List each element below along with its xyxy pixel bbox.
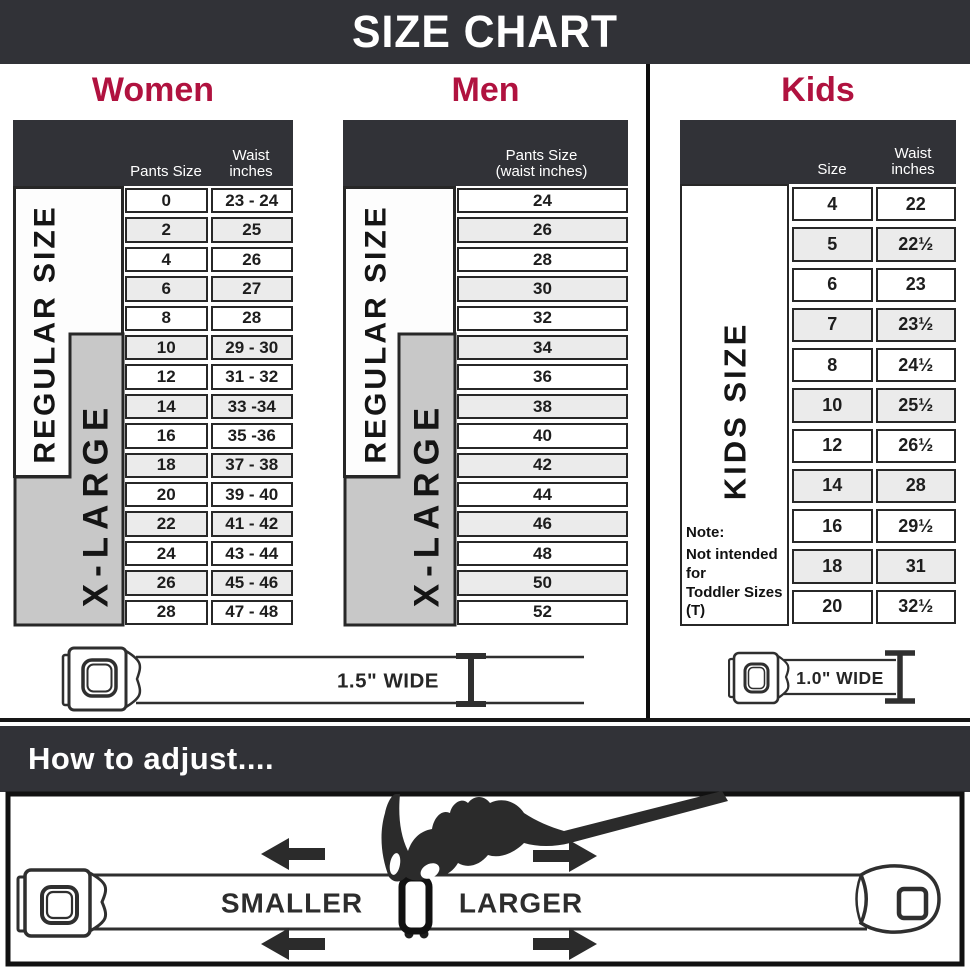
pants-size-cell: 44	[457, 482, 628, 507]
pants-size-cell: 32	[457, 306, 628, 331]
pants-size-cell: 38	[457, 394, 628, 419]
pants-size-cell: 2	[125, 217, 208, 242]
kids-size-side-label: KIDS SIZE	[718, 322, 753, 501]
pants-size-cell: 42	[457, 453, 628, 478]
table-row: 34	[457, 333, 628, 362]
adjustment-illustration: SMALLER LARGER	[5, 791, 965, 967]
how-to-adjust-band: How to adjust....	[0, 726, 970, 792]
size-cell: 14	[792, 469, 873, 503]
kids-table-header: Size Waist inches	[680, 120, 956, 184]
size-chart-page: SIZE CHART Women Men Kids Pants Size Wai…	[0, 0, 970, 971]
size-cell: 18	[792, 549, 873, 583]
kids-size-group-label-box: KIDS SIZE Note: Not intended for Toddler…	[680, 184, 789, 626]
table-row: 30	[457, 274, 628, 303]
kids-belt-illustration: 1.0" WIDE	[728, 645, 933, 717]
table-row: 16 29½	[792, 506, 956, 546]
table-row: 14 33 -34	[125, 392, 293, 421]
waist-cell: 29½	[876, 509, 957, 543]
men-table-header: Pants Size (waist inches)	[343, 120, 628, 186]
table-row: 42	[457, 451, 628, 480]
column-header-waist-inches: Waist inches	[209, 148, 293, 180]
table-row: 2 25	[125, 215, 293, 244]
table-row: 8 24½	[792, 345, 956, 385]
waist-cell: 28	[211, 306, 294, 331]
table-row: 26 45 - 46	[125, 568, 293, 597]
table-row: 38	[457, 392, 628, 421]
table-row: 44	[457, 480, 628, 509]
table-row: 16 35 -36	[125, 421, 293, 450]
women-size-table: Pants Size Waist inches REGULAR SIZE X-L…	[13, 120, 293, 627]
table-row: 14 28	[792, 466, 956, 506]
waist-cell: 31	[876, 549, 957, 583]
table-row: 10 25½	[792, 385, 956, 425]
pants-size-cell: 30	[457, 276, 628, 301]
waist-cell: 22½	[876, 227, 957, 261]
waist-cell: 32½	[876, 590, 957, 624]
pants-size-cell: 22	[125, 511, 208, 536]
section-title-kids: Kids	[680, 66, 956, 114]
pants-size-cell: 6	[125, 276, 208, 301]
table-row: 40	[457, 421, 628, 450]
size-cell: 7	[792, 308, 873, 342]
smaller-label: SMALLER	[221, 888, 363, 919]
table-row: 6 23	[792, 265, 956, 305]
table-row: 7 23½	[792, 305, 956, 345]
seatbelt-buckle-icon	[63, 648, 140, 710]
adult-belt-illustration: 1.5" WIDE	[58, 645, 588, 717]
pants-size-cell: 4	[125, 247, 208, 272]
table-row: 4 22	[792, 184, 956, 224]
kids-size-table: Size Waist inches KIDS SIZE Note: Not in…	[680, 120, 956, 627]
size-cell: 12	[792, 429, 873, 463]
waist-cell: 23 - 24	[211, 188, 294, 213]
table-row: 46	[457, 509, 628, 538]
table-row: 5 22½	[792, 224, 956, 264]
table-row: 6 27	[125, 274, 293, 303]
women-table-rows: 0 23 - 24 2 25 4 26 6 27 8 28	[125, 186, 293, 627]
width-measure-mark	[456, 656, 486, 704]
men-size-table: Pants Size (waist inches) REGULAR SIZE X…	[343, 120, 628, 627]
larger-label: LARGER	[459, 888, 583, 919]
men-kids-divider	[646, 64, 650, 718]
men-regular-size-label: REGULAR SIZE	[360, 204, 393, 463]
belt-tip	[857, 866, 940, 932]
waist-cell: 31 - 32	[211, 364, 294, 389]
seatbelt-buckle-icon	[729, 653, 788, 703]
waist-cell: 23½	[876, 308, 957, 342]
adult-belt-width-label: 1.5" WIDE	[337, 670, 439, 693]
women-size-group-labels: REGULAR SIZE X-LARGE	[13, 186, 125, 627]
kids-belt-width-label: 1.0" WIDE	[796, 668, 884, 688]
column-header-waist-inches: Waist inches	[872, 146, 954, 178]
seatbelt-buckle-icon	[18, 870, 106, 936]
waist-cell: 41 - 42	[211, 511, 294, 536]
table-row: 18 37 - 38	[125, 451, 293, 480]
waist-cell: 25	[211, 217, 294, 242]
table-row: 50	[457, 568, 628, 597]
page-title: SIZE CHART	[352, 6, 618, 58]
table-row: 32	[457, 304, 628, 333]
pants-size-cell: 20	[125, 482, 208, 507]
waist-cell: 45 - 46	[211, 570, 294, 595]
size-chart-area: Women Men Kids Pants Size Waist inches R…	[0, 64, 970, 718]
table-row: 48	[457, 539, 628, 568]
pants-size-cell: 0	[125, 188, 208, 213]
pants-size-cell: 24	[457, 188, 628, 213]
kids-table-rows: 4 22 5 22½ 6 23 7 23½ 8 24½	[792, 184, 956, 627]
size-cell: 4	[792, 187, 873, 221]
men-xlarge-label: X-LARGE	[408, 401, 447, 608]
men-size-group-labels: REGULAR SIZE X-LARGE	[343, 186, 457, 627]
table-row: 28	[457, 245, 628, 274]
table-row: 0 23 - 24	[125, 186, 293, 215]
pants-size-cell: 28	[457, 247, 628, 272]
size-cell: 5	[792, 227, 873, 261]
pants-size-cell: 52	[457, 600, 628, 625]
how-to-adjust-heading: How to adjust....	[28, 741, 274, 777]
pants-size-cell: 14	[125, 394, 208, 419]
women-regular-size-label: REGULAR SIZE	[29, 204, 62, 463]
pants-size-cell: 18	[125, 453, 208, 478]
pants-size-cell: 12	[125, 364, 208, 389]
size-cell: 10	[792, 388, 873, 422]
pants-size-cell: 8	[125, 306, 208, 331]
waist-cell: 22	[876, 187, 957, 221]
pants-size-cell: 26	[125, 570, 208, 595]
section-divider-line	[0, 718, 970, 722]
pants-size-cell: 28	[125, 600, 208, 625]
pants-size-cell: 46	[457, 511, 628, 536]
waist-cell: 23	[876, 268, 957, 302]
section-title-men: Men	[343, 66, 628, 114]
women-xlarge-label: X-LARGE	[77, 401, 116, 608]
table-row: 18 31	[792, 546, 956, 586]
pants-size-cell: 26	[457, 217, 628, 242]
table-row: 28 47 - 48	[125, 598, 293, 627]
table-row: 10 29 - 30	[125, 333, 293, 362]
men-table-rows: 24 26 28 30 32 34 36 38	[457, 186, 628, 627]
women-table-header: Pants Size Waist inches	[13, 120, 293, 186]
size-cell: 20	[792, 590, 873, 624]
table-row: 22 41 - 42	[125, 509, 293, 538]
waist-cell: 37 - 38	[211, 453, 294, 478]
column-header-pants-size-waist: Pants Size (waist inches)	[455, 148, 628, 180]
table-row: 8 28	[125, 304, 293, 333]
size-chart-banner: SIZE CHART	[0, 0, 970, 64]
waist-cell: 43 - 44	[211, 541, 294, 566]
table-row: 24	[457, 186, 628, 215]
table-row: 26	[457, 215, 628, 244]
waist-cell: 26	[211, 247, 294, 272]
pants-size-cell: 40	[457, 423, 628, 448]
column-header-pants-size: Pants Size	[123, 164, 209, 180]
waist-cell: 26½	[876, 429, 957, 463]
pants-size-cell: 48	[457, 541, 628, 566]
table-row: 24 43 - 44	[125, 539, 293, 568]
kids-note: Note: Not intended for Toddler Sizes (T)	[686, 524, 787, 621]
pants-size-cell: 10	[125, 335, 208, 360]
table-row: 4 26	[125, 245, 293, 274]
waist-cell: 28	[876, 469, 957, 503]
pants-size-cell: 50	[457, 570, 628, 595]
waist-cell: 25½	[876, 388, 957, 422]
table-row: 20 32½	[792, 587, 956, 627]
column-header-size: Size	[792, 162, 872, 178]
table-row: 20 39 - 40	[125, 480, 293, 509]
table-row: 12 31 - 32	[125, 362, 293, 391]
waist-cell: 24½	[876, 348, 957, 382]
pants-size-cell: 36	[457, 364, 628, 389]
size-cell: 6	[792, 268, 873, 302]
waist-cell: 39 - 40	[211, 482, 294, 507]
pants-size-cell: 24	[125, 541, 208, 566]
waist-cell: 35 -36	[211, 423, 294, 448]
pants-size-cell: 34	[457, 335, 628, 360]
waist-cell: 27	[211, 276, 294, 301]
adjuster-slider	[402, 871, 429, 939]
waist-cell: 33 -34	[211, 394, 294, 419]
waist-cell: 47 - 48	[211, 600, 294, 625]
table-row: 12 26½	[792, 426, 956, 466]
table-row: 36	[457, 362, 628, 391]
table-row: 52	[457, 598, 628, 627]
size-cell: 16	[792, 509, 873, 543]
section-title-women: Women	[13, 66, 293, 114]
pants-size-cell: 16	[125, 423, 208, 448]
waist-cell: 29 - 30	[211, 335, 294, 360]
size-cell: 8	[792, 348, 873, 382]
